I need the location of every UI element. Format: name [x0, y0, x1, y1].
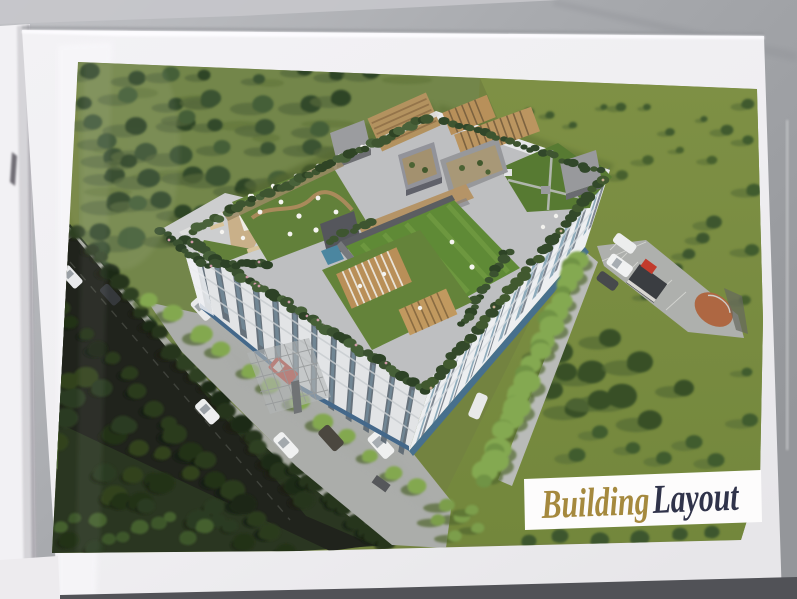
svg-text:Building: Building	[540, 477, 650, 527]
svg-text:Layout: Layout	[651, 473, 741, 522]
